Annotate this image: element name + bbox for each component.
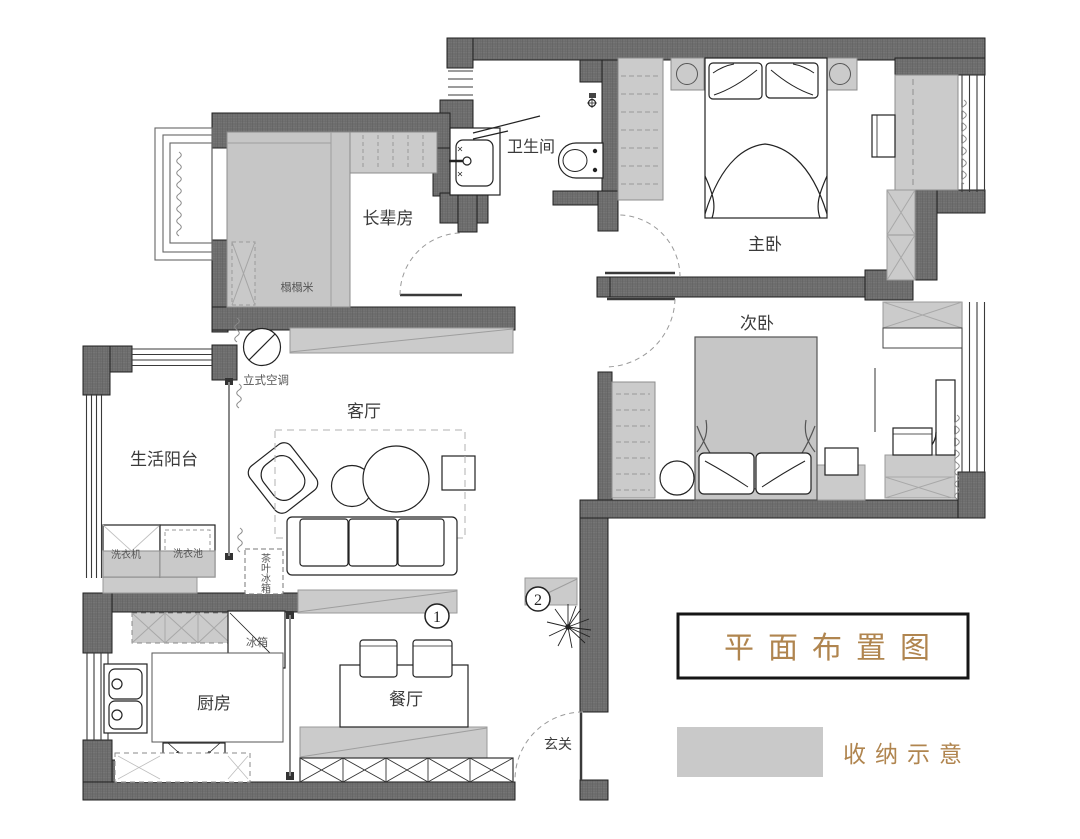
kitchen-sliding-door (286, 611, 294, 780)
label-tatami: 榻榻米 (281, 280, 314, 294)
master-bed-icon (705, 58, 827, 218)
kitchen-sink-icon (104, 664, 147, 733)
elders-wardrobe (350, 132, 437, 173)
master-storage-column (887, 190, 915, 280)
floor-plan-drawing: 1 2 卫生间 主卧 次卧 长辈房 客厅 生活阳台 厨房 餐厅 玄关 榻榻米 立… (0, 0, 1080, 839)
balcony-storage-strip (103, 577, 197, 593)
armchair-icon (245, 439, 322, 517)
label-bathroom: 卫生间 (507, 138, 555, 156)
stool-icon (660, 461, 694, 495)
label-washing-machine: 洗衣机 (111, 548, 141, 561)
floor-plan-page: 1 2 卫生间 主卧 次卧 长辈房 客厅 生活阳台 厨房 餐厅 玄关 榻榻米 立… (0, 0, 1080, 839)
marker-1: 1 (425, 604, 449, 628)
bedside-box-icon (825, 448, 858, 475)
desk-icon (893, 380, 955, 455)
label-kitchen: 厨房 (197, 694, 231, 713)
legend: 收纳示意 (677, 727, 971, 777)
shower-valve-icon (587, 93, 597, 108)
second-bedroom-wardrobe (612, 382, 655, 498)
toilet-icon (559, 143, 603, 178)
master-right-wardrobe (895, 75, 958, 190)
label-tea-fridge: 茶叶冰箱 (259, 552, 271, 594)
marker-2-number: 2 (534, 592, 542, 609)
side-table-icon (442, 456, 475, 490)
label-standing-ac: 立式空调 (243, 373, 289, 387)
label-dining-room: 餐厅 (389, 690, 423, 709)
floor-ac-icon (244, 329, 281, 366)
marker-2: 2 (526, 587, 550, 611)
window-balcony-left (87, 394, 102, 578)
label-elders-room: 长辈房 (363, 209, 414, 228)
window-second-bedroom-right (962, 302, 985, 472)
label-living-room: 客厅 (347, 402, 381, 421)
master-left-wardrobe (618, 58, 663, 200)
bay-window-frames (155, 128, 212, 260)
dining-storage-strip (300, 727, 487, 758)
sofa-icon (287, 517, 457, 575)
nightstand-right (824, 58, 857, 90)
second-bedroom-top-storage (883, 302, 962, 348)
marker-1-number: 1 (433, 609, 441, 626)
label-entryway: 玄关 (544, 736, 572, 753)
label-second-bedroom: 次卧 (740, 314, 774, 333)
window-balcony-top (132, 349, 212, 366)
desk-storage-pad (885, 455, 955, 498)
page-title: 平面布置图 (724, 632, 944, 665)
legend-swatch (677, 727, 823, 777)
master-desk-icon (872, 115, 895, 157)
label-master-bedroom: 主卧 (748, 235, 782, 254)
tv-cabinet (290, 328, 513, 353)
second-bedroom-door (605, 299, 675, 367)
window-bathroom-left (448, 71, 473, 95)
title-block: 平面布置图 (678, 614, 968, 678)
second-bed-icon (695, 337, 817, 500)
label-service-balcony: 生活阳台 (130, 450, 198, 469)
balcony-sliding-door (225, 378, 233, 560)
nightstand-left (671, 58, 704, 90)
dining-chair-icon (413, 640, 452, 677)
window-master-right (962, 75, 985, 192)
label-fridge: 冰箱 (246, 635, 268, 649)
label-laundry-sink: 洗衣池 (173, 547, 203, 560)
dining-chair-icon (360, 640, 397, 677)
kitchen-counter-dashed (115, 753, 250, 782)
kitchen-upper-cabinets (132, 613, 230, 643)
coffee-table-large-icon (363, 446, 429, 512)
tatami-bed (227, 132, 350, 307)
elders-room-door (400, 233, 462, 295)
entry-bench-lattice (300, 758, 513, 782)
legend-label: 收纳示意 (843, 741, 971, 767)
